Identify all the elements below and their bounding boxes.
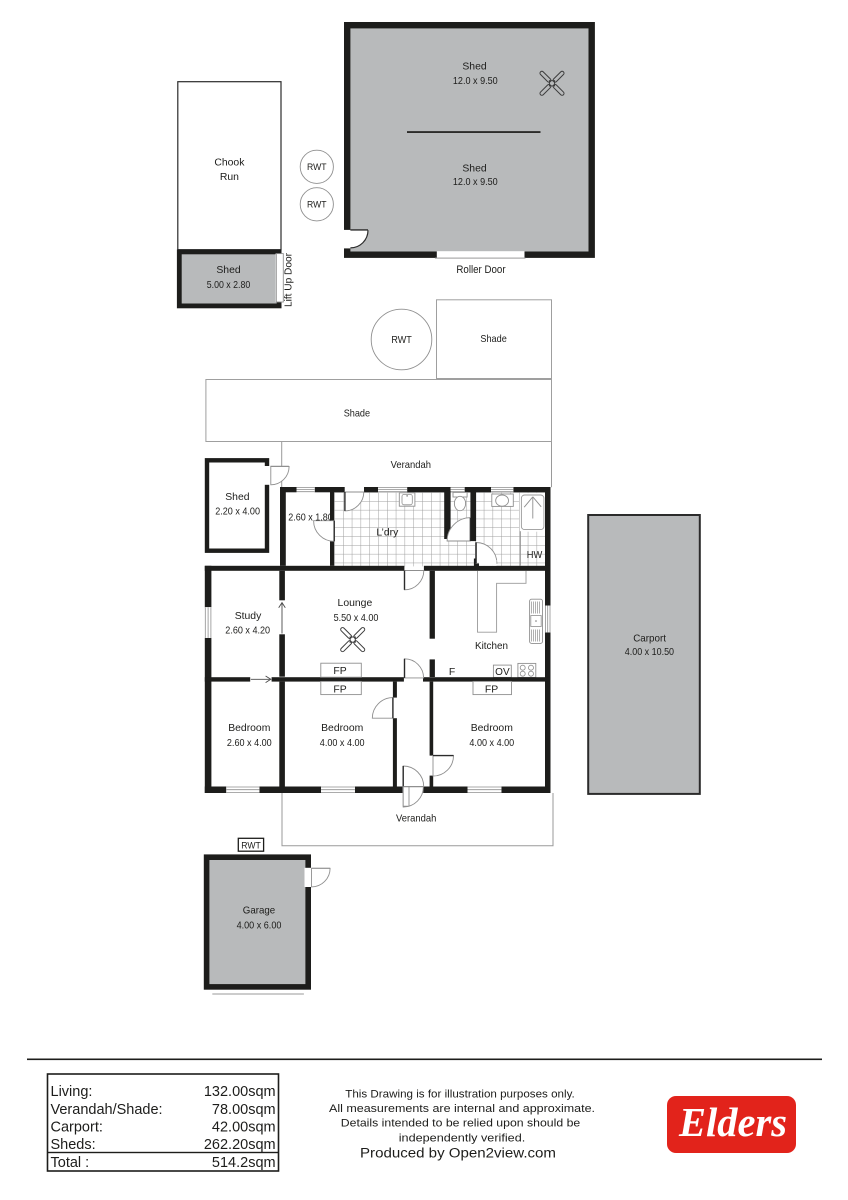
svg-text:Lift Up Door: Lift Up Door	[283, 252, 294, 307]
svg-text:4.00 x 6.00: 4.00 x 6.00	[237, 921, 282, 932]
svg-text:4.00 x 4.00: 4.00 x 4.00	[320, 738, 365, 749]
svg-text:Shed: Shed	[225, 492, 249, 503]
svg-text:Shed: Shed	[462, 163, 486, 174]
svg-text:5.00 x 2.80: 5.00 x 2.80	[207, 280, 251, 291]
svg-text:Produced by Open2view.com: Produced by Open2view.com	[360, 1146, 556, 1161]
svg-text:4.00 x 10.50: 4.00 x 10.50	[625, 647, 674, 658]
svg-text:RWT: RWT	[307, 161, 327, 172]
svg-text:RWT: RWT	[307, 199, 327, 210]
svg-text:F: F	[449, 667, 455, 678]
svg-text:Carport: Carport	[633, 634, 666, 645]
svg-text:Shed: Shed	[216, 265, 240, 276]
svg-text:132.00sqm: 132.00sqm	[204, 1084, 276, 1100]
svg-text:Elders: Elders	[678, 1099, 787, 1145]
svg-text:Kitchen: Kitchen	[475, 641, 508, 652]
svg-text:Bedroom: Bedroom	[321, 723, 363, 734]
svg-text:FP: FP	[333, 684, 346, 695]
svg-text:Details intended to be relied: Details intended to be relied upon shoul…	[341, 1118, 581, 1130]
svg-text:5.50 x 4.00: 5.50 x 4.00	[334, 613, 379, 624]
svg-text:RWT: RWT	[241, 839, 261, 850]
svg-text:2.60 x 4.20: 2.60 x 4.20	[225, 626, 270, 637]
svg-text:L’dry: L’dry	[376, 527, 399, 538]
svg-text:RWT: RWT	[391, 335, 411, 346]
svg-text:Study: Study	[235, 611, 262, 622]
svg-text:Carport:: Carport:	[51, 1120, 103, 1136]
svg-text:OV: OV	[495, 667, 510, 678]
svg-text:Bedroom: Bedroom	[228, 723, 270, 734]
svg-text:514.2sqm: 514.2sqm	[212, 1155, 276, 1171]
svg-text:Roller Door: Roller Door	[456, 264, 506, 276]
svg-text:12.0 x 9.50: 12.0 x 9.50	[453, 177, 498, 188]
svg-text:Total :: Total :	[51, 1155, 90, 1171]
svg-text:Verandah: Verandah	[396, 813, 436, 824]
svg-text:FP: FP	[333, 666, 346, 677]
svg-text:12.0 x 9.50: 12.0 x 9.50	[453, 76, 498, 87]
svg-text:Bedroom: Bedroom	[471, 723, 513, 734]
svg-text:Garage: Garage	[243, 906, 276, 917]
svg-text:262.20sqm: 262.20sqm	[204, 1137, 276, 1153]
svg-text:Shed: Shed	[462, 61, 486, 72]
svg-text:2.60 x 1.80: 2.60 x 1.80	[288, 513, 333, 524]
svg-text:Verandah: Verandah	[391, 460, 431, 471]
svg-text:HW: HW	[527, 550, 543, 561]
svg-text:Sheds:: Sheds:	[51, 1137, 96, 1153]
svg-text:Verandah/Shade:: Verandah/Shade:	[51, 1102, 163, 1118]
svg-text:This Drawing is for illustrati: This Drawing is for illustration purpose…	[345, 1088, 575, 1100]
svg-text:2.60 x 4.00: 2.60 x 4.00	[227, 738, 272, 749]
svg-text:Living:: Living:	[51, 1084, 93, 1100]
svg-text:Run: Run	[220, 172, 239, 183]
svg-text:Lounge: Lounge	[338, 598, 373, 609]
svg-text:2.20 x 4.00: 2.20 x 4.00	[215, 507, 260, 518]
svg-text:78.00sqm: 78.00sqm	[212, 1102, 276, 1118]
svg-text:Shade: Shade	[344, 408, 371, 419]
svg-text:Chook: Chook	[214, 157, 245, 168]
svg-text:Shade: Shade	[480, 334, 507, 345]
svg-text:4.00 x 4.00: 4.00 x 4.00	[469, 738, 514, 749]
svg-text:All measurements are internal: All measurements are internal and approx…	[329, 1103, 595, 1115]
svg-text:FP: FP	[485, 684, 498, 695]
svg-text:42.00sqm: 42.00sqm	[212, 1120, 276, 1136]
svg-text:independently verified.: independently verified.	[399, 1132, 526, 1144]
